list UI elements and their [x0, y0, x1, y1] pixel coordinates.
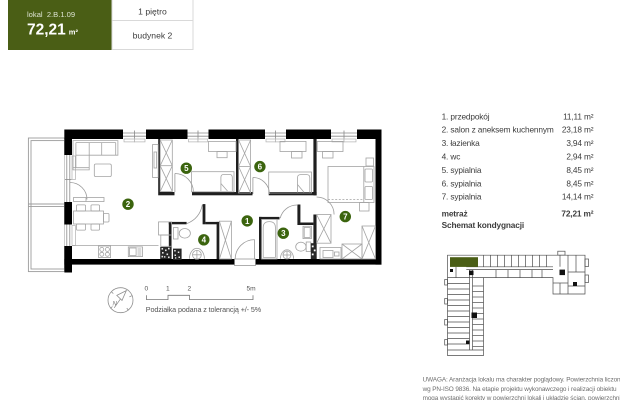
svg-text:0: 0 [145, 286, 149, 293]
svg-text:2. salon z aneksem kuchennym: 2. salon z aneksem kuchennym [442, 125, 554, 135]
svg-text:N: N [113, 302, 118, 308]
svg-text:7. sypialnia: 7. sypialnia [442, 192, 482, 202]
svg-text:3: 3 [281, 229, 286, 238]
svg-text:3,94 m²: 3,94 m² [566, 138, 593, 148]
svg-text:14,14 m²: 14,14 m² [562, 192, 594, 202]
svg-text:budynek 2: budynek 2 [133, 31, 173, 41]
svg-text:8,45 m²: 8,45 m² [566, 165, 593, 175]
svg-text:1. przedpokój: 1. przedpokój [442, 111, 490, 121]
svg-text:6. sypialnia: 6. sypialnia [442, 178, 482, 188]
svg-text:23,18 m²: 23,18 m² [562, 125, 594, 135]
svg-text:Schemat kondygnacji: Schemat kondygnacji [442, 220, 524, 230]
svg-text:1 piętro: 1 piętro [138, 7, 167, 17]
svg-text:metraż: metraż [442, 208, 468, 218]
svg-text:2: 2 [188, 286, 192, 293]
svg-text:lokal 2.B.1.09: lokal 2.B.1.09 [27, 10, 75, 19]
svg-text:5. sypialnia: 5. sypialnia [442, 165, 482, 175]
svg-text:5: 5 [184, 164, 189, 173]
svg-text:4. wc: 4. wc [442, 152, 461, 162]
svg-text:6: 6 [258, 163, 263, 172]
svg-text:7: 7 [343, 213, 348, 222]
svg-text:1: 1 [166, 286, 170, 293]
svg-text:UWAGA: Aranżacja lokalu ma cha: UWAGA: Aranżacja lokalu ma charakter pog… [423, 377, 620, 384]
svg-text:Podziałka podana z tolerancją: Podziałka podana z tolerancją +/- 5% [146, 305, 262, 314]
svg-text:1: 1 [245, 217, 250, 226]
svg-text:2: 2 [126, 200, 131, 209]
svg-text:2,94 m²: 2,94 m² [566, 152, 593, 162]
svg-text:5m: 5m [247, 286, 257, 293]
svg-text:3. łazienka: 3. łazienka [442, 138, 481, 148]
svg-text:8,45 m²: 8,45 m² [566, 178, 593, 188]
svg-text:mogą wystąpić korekty w powier: mogą wystąpić korekty w powierzchni loka… [423, 395, 620, 400]
svg-text:72,21 m²: 72,21 m² [561, 208, 593, 218]
svg-text:wg PN-ISO 9836. Na etapie proj: wg PN-ISO 9836. Na etapie projektu wykon… [422, 386, 617, 393]
svg-text:4: 4 [202, 236, 207, 245]
svg-text:11,11 m²: 11,11 m² [563, 111, 594, 121]
